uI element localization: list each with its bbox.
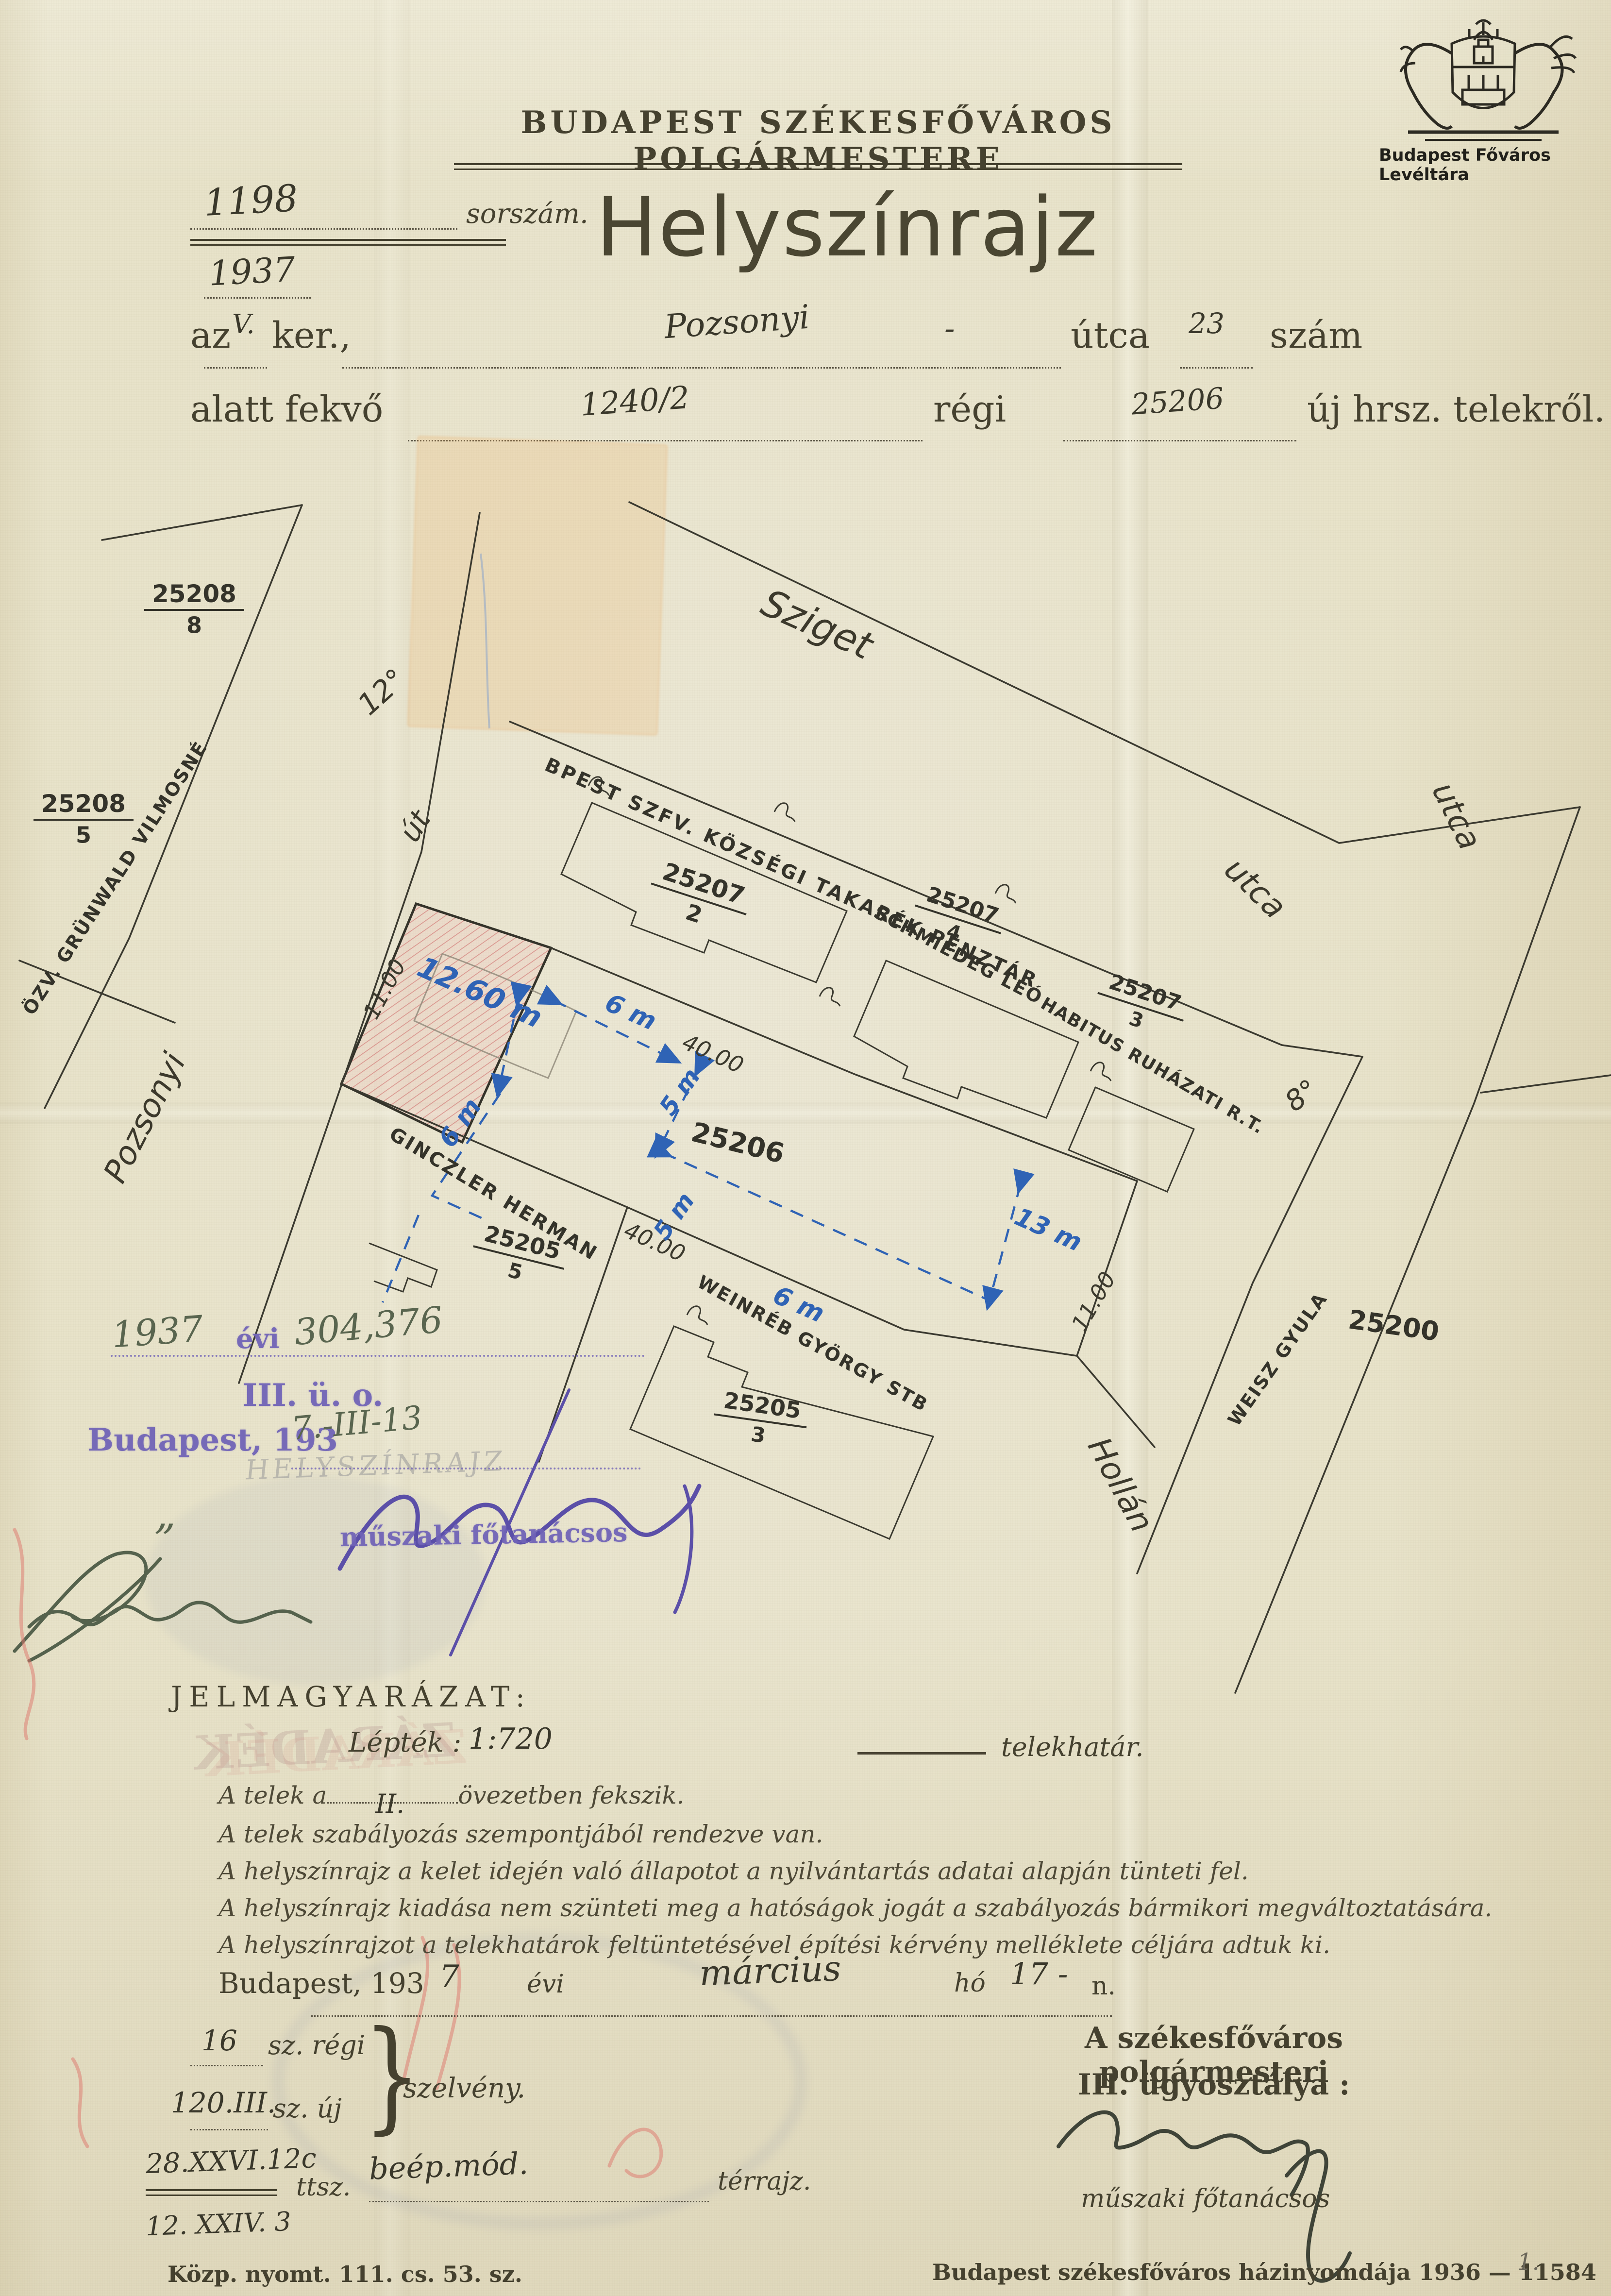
dateline-ho: hó [954,1969,986,1998]
dateline-dotted [311,2015,1112,2017]
dateline-day-hand: 17 - [1010,1956,1068,1992]
svg-text:2: 2 [683,899,705,929]
svg-text:8: 8 [186,612,202,639]
legend-line-2: A telek szabályozás szempontjából rendez… [218,1820,823,1848]
footer-print-code: Közp. nyomt. 111. cs. 53. sz. [168,2261,522,2287]
zone-dotted: II. [327,1802,458,1804]
parcel-25207-2: 252072 [642,855,755,941]
svg-text:6 m: 6 m [601,988,660,1036]
street-width-12: 12° [352,662,413,722]
dateline-month-hand: március [699,1948,842,1993]
section-new-dotted [190,2129,268,2130]
svg-text:WEISZ GYULA: WEISZ GYULA [1224,1288,1332,1430]
stamp-dotted-rule-1 [111,1355,645,1357]
ttsz-label: ttsz. [296,2173,351,2202]
owner-weisz: WEISZ GYULA [1224,1288,1332,1430]
svg-text:5: 5 [76,822,91,848]
dateline-evi: évi [527,1970,564,1999]
legend-line-1: A telek aII.övezetben fekszik. [218,1781,685,1809]
svg-text:25208: 25208 [41,790,126,818]
svg-text:út: út [393,804,438,848]
svg-text:25207: 25207 [659,857,748,910]
file-year-pencil: 1937 [110,1308,204,1356]
ref1-entry: 28.XXVI.12c [145,2143,317,2180]
legend-line-3: A helyszínrajz a kelet idején való állap… [218,1857,1249,1885]
terrajz-label: térrajz. [718,2167,811,2196]
dateline-year-hand: 7 [439,1959,459,1995]
owner-grunwald: ÖZV. GRÜNWALD VILMOSNÉ [18,737,212,1019]
svg-text:3: 3 [750,1422,767,1448]
svg-text:11.00: 11.00 [1066,1267,1121,1335]
svg-text:8°: 8° [1279,1073,1324,1118]
svg-text:utca: utca [1425,776,1489,856]
svg-text:25200: 25200 [1346,1304,1441,1347]
section-new-label: sz. új [273,2093,342,2124]
street-utca-2: utca [1425,776,1489,856]
footer-printer: Budapest székesfőváros házinyomdája 1936… [932,2259,1596,2285]
parcel-25208-5: 252085 [34,790,134,848]
mode-entry: beép.mód. [369,2145,529,2186]
svg-text:HABITUS RUHÁZATI R.T.: HABITUS RUHÁZATI R.T. [1037,993,1268,1138]
svg-text:25205: 25205 [722,1387,803,1424]
building-outlines [369,803,1194,1539]
svg-text:25206: 25206 [688,1116,788,1170]
green-quote-mark: „ [154,1490,176,1538]
scale-value: 1:720 [469,1722,553,1756]
street-sziget: Sziget [755,581,880,669]
ref2-entry: 12. XXIV. 3 [145,2206,292,2242]
svg-text:3: 3 [1126,1006,1147,1032]
approval-line-2: III. ügyosztálya : [971,2068,1457,2102]
dateline-n: n. [1091,1972,1116,2001]
svg-text:ÖZV. GRÜNWALD VILMOSNÉ: ÖZV. GRÜNWALD VILMOSNÉ [18,737,212,1019]
svg-text:13 m: 13 m [1010,1202,1087,1258]
dim-frontage-right: 11.00 [1066,1267,1121,1335]
dateline-city: Budapest, 193 [218,1967,424,2000]
parcel-25200: 25200 [1346,1304,1441,1347]
mode-dotted [369,2201,709,2202]
section-old-label: sz. régi [268,2030,365,2060]
svg-text:12°: 12° [352,662,413,722]
street-hollan: Hollán [1080,1431,1161,1538]
scale-label: Lépték : [349,1727,461,1758]
legend-title: JELMAGYARÁZAT: [171,1680,532,1713]
blue-crease-mark [481,554,489,728]
svg-text:25208: 25208 [152,580,236,608]
boundary-symbol-line [857,1752,986,1755]
street-width-8: 8° [1279,1073,1324,1118]
street-utca-1: utca [1217,850,1293,926]
svg-text:Sziget: Sziget [755,581,880,669]
street-ut: út [393,804,438,848]
legend-line-1-pre: A telek a [218,1781,327,1809]
evi-stamp: évi [236,1323,279,1355]
svg-text:Pozsonyi: Pozsonyi [96,1047,193,1189]
boundary-lines [19,502,1611,1693]
legend-line-4: A helyszínrajz kiadása nem szünteti meg … [218,1894,1492,1922]
ref1-rule [146,2189,277,2196]
red-ghost-marks [15,1530,661,2177]
section-new-entry: 120.III. [171,2086,276,2119]
parcel-25206: 25206 [688,1116,788,1170]
page-number-pencil: 1. [1517,2248,1540,2276]
section-old-entry: 16 [201,2024,237,2057]
legend-line-1-post: övezetben fekszik. [458,1781,684,1809]
section-old-dotted [190,2065,263,2066]
parcel-25205-3: 252053 [710,1386,810,1453]
stamp-dotted-rule-2 [291,1468,641,1469]
svg-text:SCHMIEDEG LEÓ: SCHMIEDEG LEÓ [870,901,1047,1009]
street-pozsonyi: Pozsonyi [96,1047,193,1189]
signer-title: műszaki főtanácsos [1081,2184,1330,2213]
owner-schmiedeg: SCHMIEDEG LEÓ [870,901,1047,1009]
green-signatures [15,1553,311,1661]
dim-blue-6b: 6 m [601,988,660,1036]
boundary-label: telekhatár. [1001,1732,1144,1762]
svg-text:Hollán: Hollán [1080,1431,1161,1538]
owner-habitus: HABITUS RUHÁZATI R.T. [1037,993,1268,1138]
zone-entry: II. [375,1789,404,1819]
svg-text:5: 5 [505,1258,525,1285]
szelveny-label: szelvény. [403,2073,525,2104]
svg-text:utca: utca [1217,850,1293,926]
counter-signer-title-stamp: műszaki főtanácsos [339,1517,627,1553]
parcel-25208-8: 252088 [144,580,244,639]
dim-blue-13: 13 m [1010,1202,1087,1258]
